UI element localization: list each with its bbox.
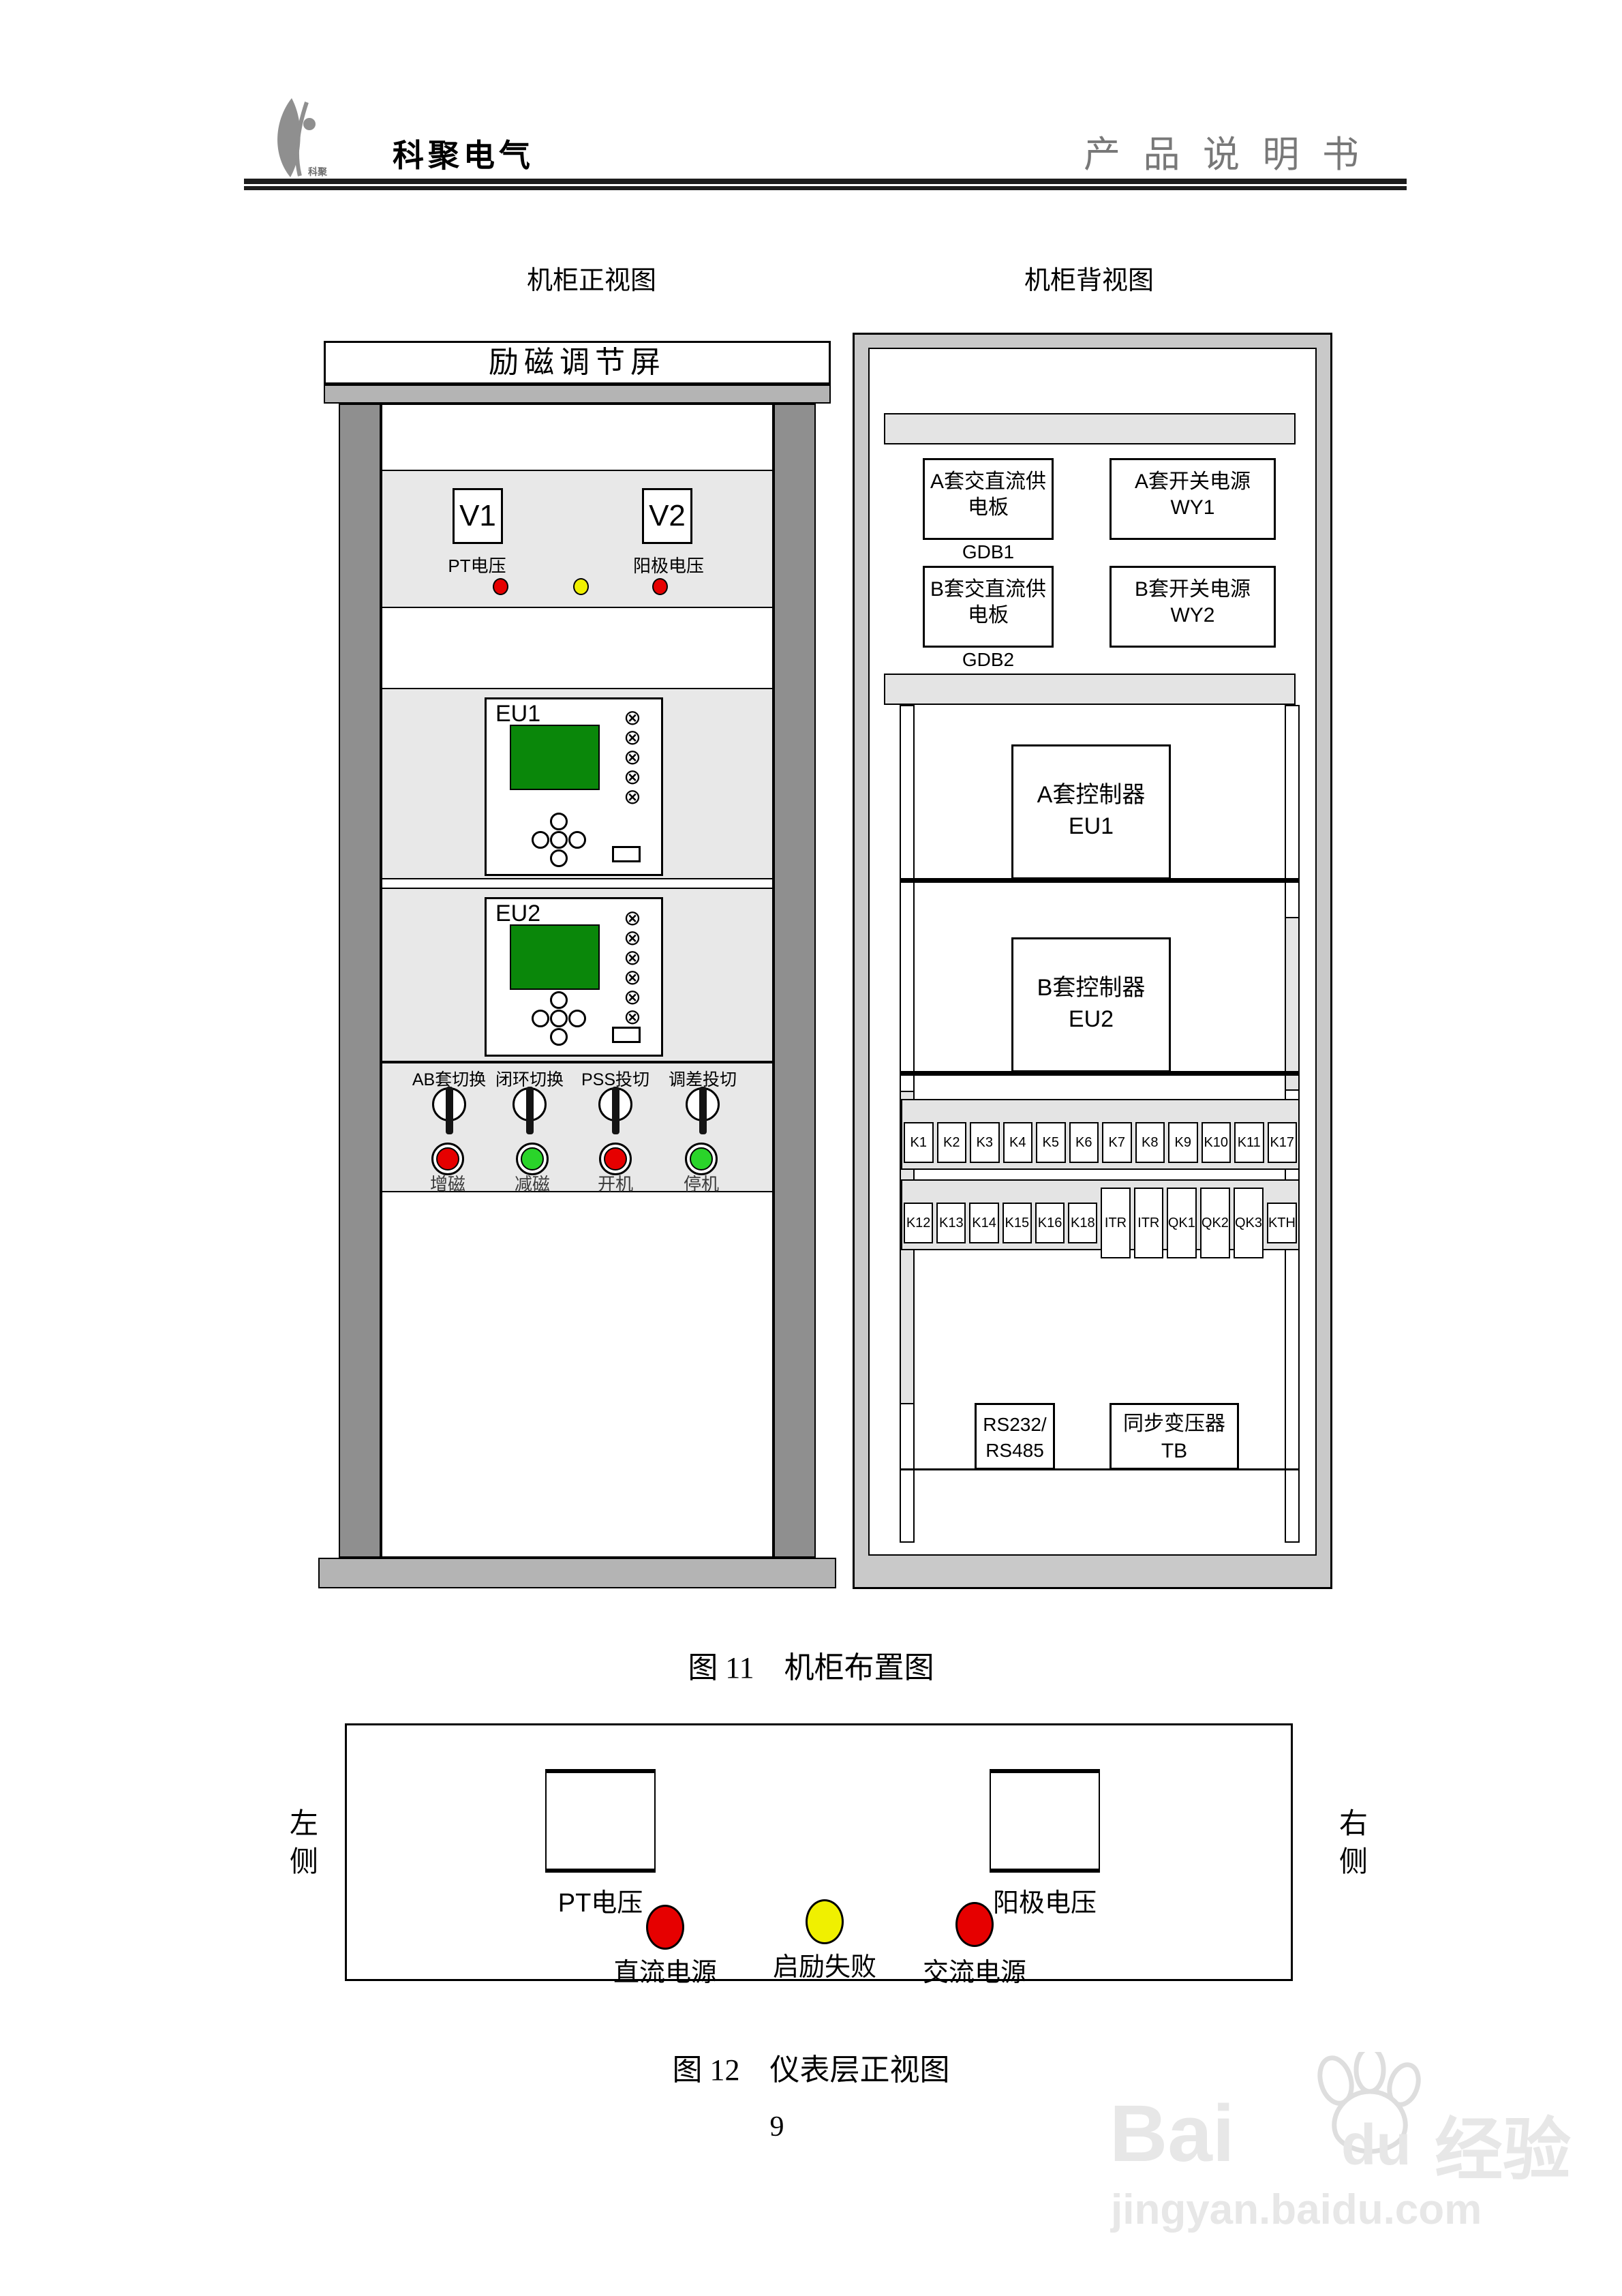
decrease-excitation-button-cap[interactable]	[521, 1147, 544, 1170]
front-cabinet-base	[318, 1558, 836, 1588]
sync-transformer-line1: 同步变压器	[1112, 1410, 1237, 1438]
comm-port-line2: RS485	[977, 1438, 1053, 1464]
back-view-title: 机柜背视图	[968, 259, 1210, 297]
eu1-dpad-center-button[interactable]	[550, 831, 568, 849]
relay-cell: K4	[1003, 1122, 1033, 1163]
pt-voltage-meter-label: PT电压	[532, 1882, 669, 1919]
right-side-label: 右侧	[1337, 1805, 1370, 1882]
anode-voltage-meter	[990, 1769, 1100, 1873]
eu1-screen	[510, 725, 600, 790]
increase-excitation-button-cap[interactable]	[436, 1147, 459, 1170]
power-board-a-line2: 电板	[925, 495, 1052, 521]
relay-cell: K9	[1168, 1122, 1198, 1163]
relay-cell: K7	[1102, 1122, 1132, 1163]
ac-power-light-icon	[652, 578, 668, 595]
start-fail-light-icon	[573, 578, 589, 595]
relay-cell: K5	[1036, 1122, 1066, 1163]
shelf-divider	[901, 1071, 1300, 1076]
relay-cell: K16	[1035, 1203, 1065, 1243]
stop-button-cap[interactable]	[690, 1147, 713, 1170]
pt-voltage-meter	[545, 1769, 656, 1873]
relay-cell: K13	[936, 1203, 966, 1243]
switching-power-b-code: WY2	[1112, 603, 1274, 629]
eu2-dpad-up-button[interactable]	[550, 991, 568, 1009]
power-board-b-line1: B套交直流供	[925, 577, 1052, 603]
anode-voltage-meter-label: 阳极电压	[977, 1882, 1113, 1919]
relay-cell-tall: QK1	[1167, 1188, 1197, 1258]
relay-cell: K3	[970, 1122, 1000, 1163]
gdb1-label: GDB1	[947, 541, 1029, 563]
eu1-dpad-right-button[interactable]	[568, 831, 586, 849]
watermark-bai: Bai	[1110, 2087, 1235, 2180]
pt-voltage-label: PT电压	[436, 552, 518, 577]
controller-a-code: EU1	[1013, 811, 1169, 842]
watermark-du: du	[1341, 2112, 1411, 2178]
relay-cell-tall: QK3	[1234, 1188, 1264, 1258]
dc-power-light-icon	[493, 578, 508, 595]
eu2-dpad-center-button[interactable]	[550, 1010, 568, 1027]
left-side-label: 左侧	[288, 1805, 320, 1882]
relay-cell: K6	[1069, 1122, 1099, 1163]
switching-power-b-line1: B套开关电源	[1112, 577, 1274, 603]
lamp-icon: ⊗	[624, 787, 641, 806]
manual-page: 科聚 科聚电气 产 品 说 明 书 机柜正视图 机柜背视图 励磁调节屏 V1 V…	[0, 0, 1622, 2296]
relay-cell: K8	[1135, 1122, 1165, 1163]
voltmeter-v2: V2	[642, 488, 692, 544]
lamp-icon: ⊗	[624, 967, 641, 987]
shelf-divider	[901, 878, 1300, 883]
controller-b-code: EU2	[1013, 1003, 1169, 1035]
eu1-label: EU1	[495, 701, 540, 727]
watermark-jingyan: 经验	[1435, 2094, 1571, 2193]
lamp-icon: ⊗	[624, 908, 641, 928]
watermark: Bai du 经验 jingyan.baidu.com	[1090, 2052, 1615, 2243]
controller-a-line1: A套控制器	[1013, 779, 1169, 811]
back-right-rail-segment	[1285, 917, 1300, 1091]
sync-transformer-box: 同步变压器 TB	[1110, 1403, 1239, 1470]
dc-power-light-icon	[646, 1905, 684, 1950]
ac-power-label: 交流电源	[913, 1951, 1036, 1989]
header-rule	[244, 179, 1407, 190]
eu2-dpad-down-button[interactable]	[550, 1028, 568, 1046]
eu1-dpad-down-button[interactable]	[550, 849, 568, 867]
logo-caption: 科聚	[308, 165, 327, 179]
front-cabinet-header: 励磁调节屏	[324, 341, 831, 384]
relay-row-1: K1 K2 K3 K4 K5 K6 K7 K8 K9 K10 K11 K17	[904, 1122, 1297, 1163]
relay-cell: K17	[1268, 1122, 1298, 1163]
eu2-lamp-column: ⊗ ⊗ ⊗ ⊗ ⊗ ⊗	[620, 908, 645, 1027]
watermark-url: jingyan.baidu.com	[1111, 2186, 1482, 2234]
anode-voltage-label: 阳极电压	[617, 552, 720, 577]
switching-power-a-line1: A套开关电源	[1112, 469, 1274, 495]
controller-b-box: B套控制器 EU2	[1011, 937, 1171, 1072]
eu1-reset-button[interactable]	[612, 846, 641, 862]
sync-transformer-code: TB	[1112, 1438, 1237, 1465]
back-top-rail-strip	[884, 413, 1296, 444]
power-board-a-line1: A套交直流供	[925, 469, 1052, 495]
eu2-screen	[510, 924, 600, 990]
lamp-icon: ⊗	[624, 987, 641, 1007]
figure11-caption: 图 11 机柜布置图	[572, 1643, 1050, 1687]
company-name: 科聚电气	[393, 131, 534, 176]
front-cabinet-right-pillar	[774, 404, 816, 1558]
relay-cell: K10	[1202, 1122, 1231, 1163]
relay-cell: K2	[937, 1122, 967, 1163]
start-button-cap[interactable]	[604, 1147, 627, 1170]
page-number: 9	[736, 2111, 818, 2143]
controller-b-line1: B套控制器	[1013, 972, 1169, 1003]
eu2-label: EU2	[495, 901, 540, 927]
switching-power-a: A套开关电源 WY1	[1110, 458, 1276, 540]
relay-cell: KTH	[1267, 1203, 1297, 1243]
lamp-icon: ⊗	[624, 767, 641, 787]
company-logo	[264, 97, 341, 180]
bottom-shelf-line	[901, 1468, 1300, 1470]
lamp-icon: ⊗	[624, 727, 641, 747]
voltmeter-v1: V1	[453, 488, 503, 544]
controller-a-box: A套控制器 EU1	[1011, 744, 1171, 879]
switching-power-b: B套开关电源 WY2	[1110, 566, 1276, 648]
front-cabinet-left-pillar	[339, 404, 381, 1558]
start-fail-label: 启励失败	[763, 1946, 886, 1983]
lamp-icon: ⊗	[624, 928, 641, 948]
lamp-icon: ⊗	[624, 948, 641, 967]
relay-cell-tall: ITR	[1134, 1188, 1163, 1258]
front-view-title: 机柜正视图	[470, 259, 713, 297]
power-board-b-line2: 电板	[925, 603, 1052, 629]
figure12-caption: 图 12 仪表层正视图	[572, 2045, 1050, 2089]
gdb2-label: GDB2	[947, 649, 1029, 671]
comm-port-box: RS232/ RS485	[975, 1403, 1055, 1470]
switching-power-a-code: WY1	[1112, 495, 1274, 521]
front-cabinet-top-strip	[324, 384, 831, 404]
lamp-icon: ⊗	[624, 708, 641, 727]
relay-cell: K15	[1003, 1203, 1032, 1243]
eu2-dpad-right-button[interactable]	[568, 1010, 586, 1027]
eu1-dpad-up-button[interactable]	[550, 813, 568, 830]
relay-cell: K14	[969, 1203, 998, 1243]
ac-power-light-icon	[955, 1902, 994, 1947]
relay-cell: K18	[1068, 1203, 1097, 1243]
start-fail-light-icon	[806, 1899, 844, 1944]
relay-cell: K11	[1234, 1122, 1264, 1163]
power-board-a: A套交直流供 电板	[923, 458, 1054, 540]
relay-cell-tall: QK2	[1200, 1188, 1230, 1258]
rotary-lever-icon	[699, 1087, 707, 1134]
eu1-dpad-left-button[interactable]	[532, 831, 549, 849]
rotary-lever-icon	[612, 1087, 619, 1134]
back-mid-rail-strip	[884, 674, 1296, 705]
eu2-dpad-left-button[interactable]	[532, 1010, 549, 1027]
document-title: 产 品 说 明 书	[1084, 124, 1366, 178]
relay-row-2: K12 K13 K14 K15 K16 K18 ITR ITR QK1 QK2 …	[904, 1203, 1297, 1243]
dc-power-label: 直流电源	[604, 1951, 726, 1989]
lamp-icon: ⊗	[624, 1007, 641, 1027]
relay-cell: K1	[904, 1122, 934, 1163]
eu2-reset-button[interactable]	[612, 1027, 641, 1043]
comm-port-line1: RS232/	[977, 1412, 1053, 1438]
relay-cell-tall: ITR	[1101, 1188, 1130, 1258]
eu1-lamp-column: ⊗ ⊗ ⊗ ⊗ ⊗	[620, 708, 645, 806]
rotary-lever-icon	[526, 1087, 534, 1134]
lamp-icon: ⊗	[624, 747, 641, 767]
relay-cell: K12	[904, 1203, 933, 1243]
power-board-b: B套交直流供 电板	[923, 566, 1054, 648]
rotary-lever-icon	[446, 1087, 453, 1134]
